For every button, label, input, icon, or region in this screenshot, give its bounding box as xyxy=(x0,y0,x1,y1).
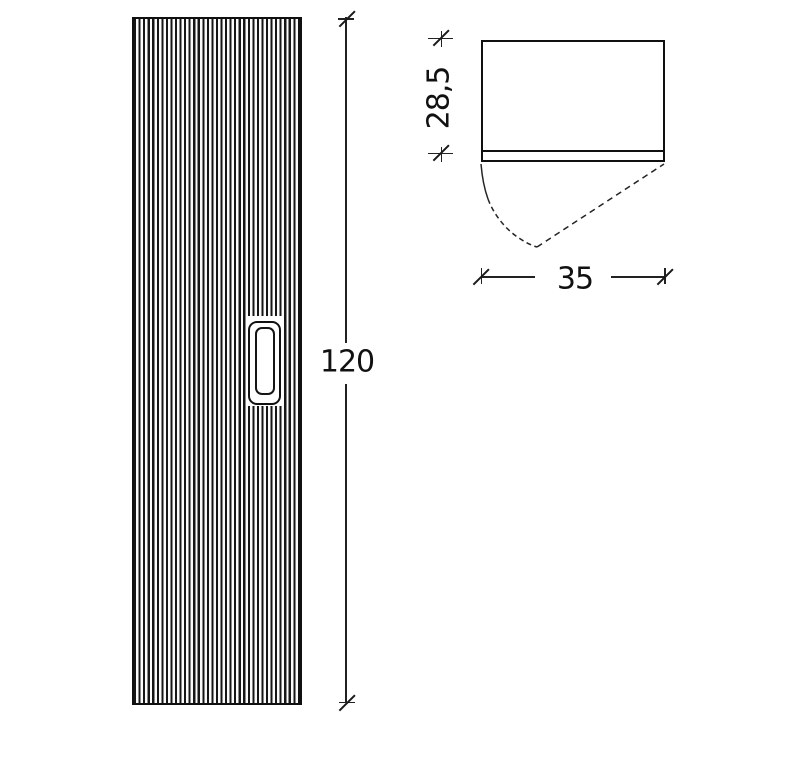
door-handle-recess xyxy=(255,327,275,395)
door-swing-arc-icon xyxy=(488,199,537,247)
side-view-body xyxy=(481,40,665,162)
door-handle xyxy=(248,321,281,405)
depth-dim-label: 28,5 xyxy=(422,67,457,130)
width-dim-line-right xyxy=(611,276,665,278)
height-dim-line-upper xyxy=(345,17,347,343)
height-dim-line-lower xyxy=(345,384,347,703)
width-dim-label: 35 xyxy=(557,262,593,297)
door-swing-arc-solid-start xyxy=(481,164,488,199)
side-view-bottom-strip-line xyxy=(481,150,665,152)
height-dim-label: 120 xyxy=(320,345,374,380)
width-dim-line-left xyxy=(481,276,535,278)
open-door-edge-dashed-line xyxy=(537,164,664,247)
door-swing-linework xyxy=(0,0,800,759)
technical-drawing-canvas: 120 28,5 35 xyxy=(0,0,800,759)
